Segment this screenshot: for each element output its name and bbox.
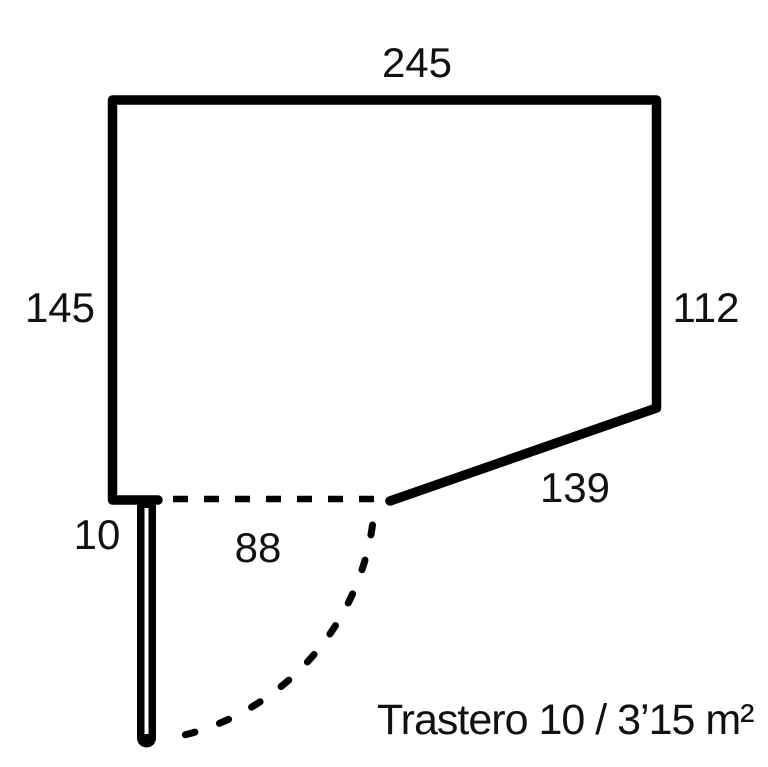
dimension-label-right-wall: 112 [673, 284, 740, 331]
floorplan-canvas: 245 145 112 139 10 88 Trastero 10 / 3’15… [0, 0, 768, 767]
dimension-label-diagonal-wall: 139 [540, 464, 610, 511]
dimension-label-door-opening: 88 [235, 524, 282, 571]
room-walls-outline [113, 100, 657, 501]
dimension-label-top-wall: 245 [382, 39, 452, 86]
room-caption: Trastero 10 / 3’15 m² [377, 696, 754, 744]
dimension-label-door-jamb: 10 [74, 511, 121, 558]
floorplan-svg: 245 145 112 139 10 88 Trastero 10 / 3’15… [0, 0, 768, 767]
dimension-label-left-wall: 145 [25, 284, 95, 331]
